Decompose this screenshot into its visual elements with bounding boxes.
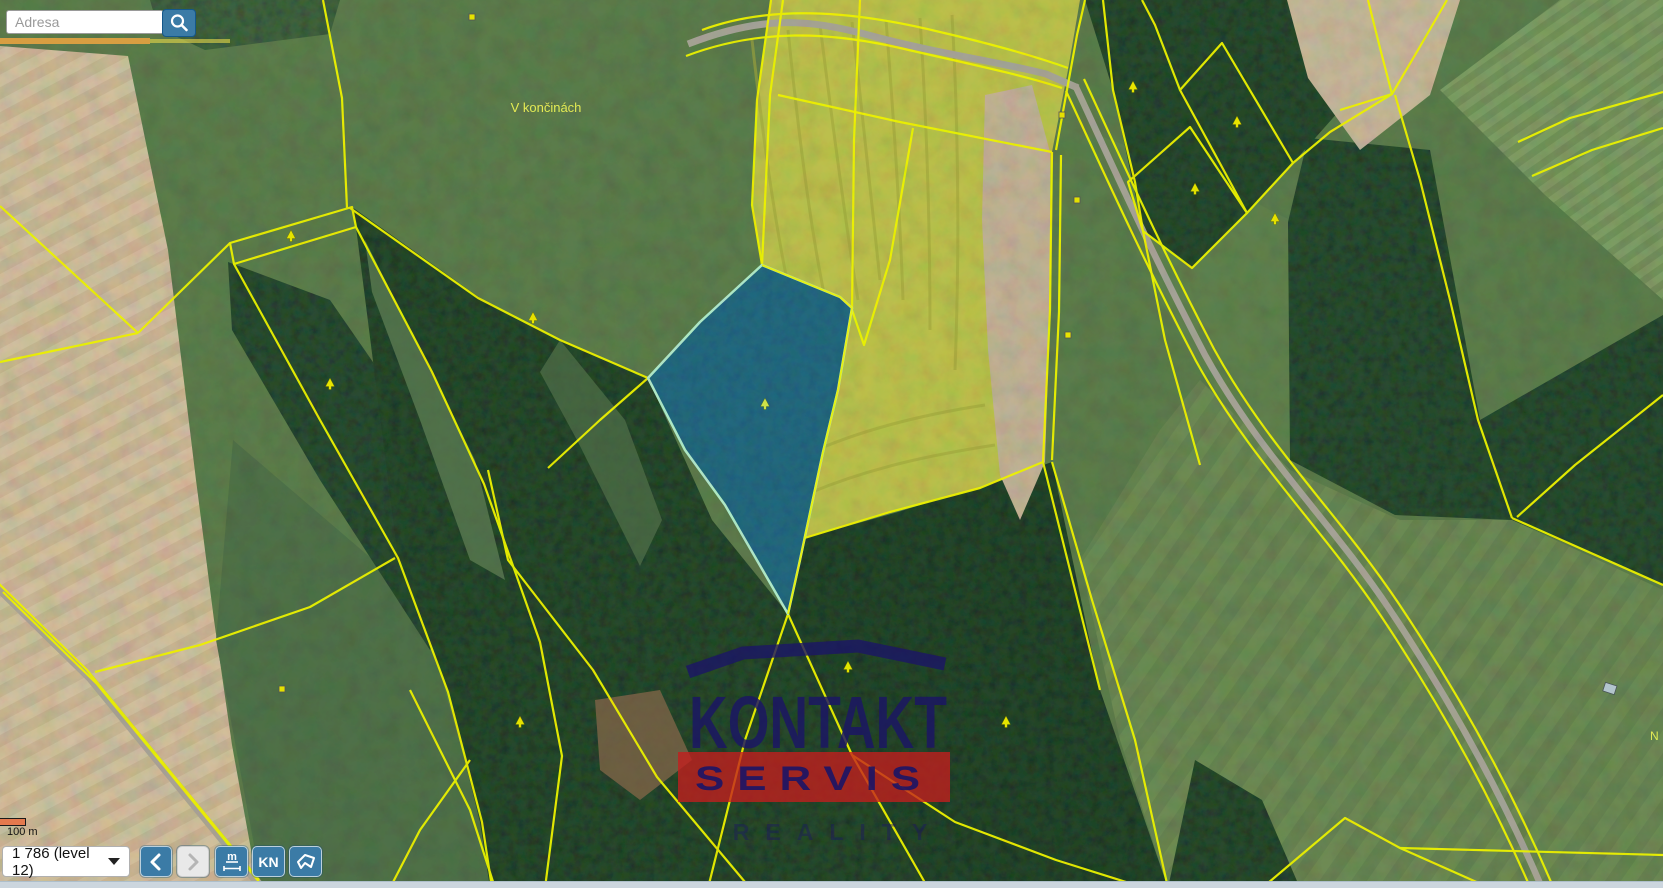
kn-label: KN [258, 854, 278, 870]
search-input[interactable] [6, 10, 164, 34]
chevron-right-icon [185, 851, 201, 873]
measure-button[interactable]: m [215, 846, 248, 877]
measure-icon: m [220, 850, 244, 874]
watermark-band-text: SERVIS [695, 760, 933, 798]
map-application: V končinách N KONTAKT SERVIS REALITY 100… [0, 0, 1663, 888]
status-strip [0, 881, 1663, 888]
back-button[interactable] [140, 846, 172, 877]
watermark-title: KONTAKT [689, 681, 947, 764]
map-canvas[interactable]: V končinách N KONTAKT SERVIS REALITY [0, 0, 1663, 888]
parcel-polygon-icon [294, 851, 318, 873]
boundary-band-fade [150, 39, 230, 43]
zoom-level-select[interactable]: 1 786 (level 12) [2, 846, 130, 877]
watermark-subtitle: REALITY [733, 819, 943, 845]
zoom-level-value: 1 786 (level 12) [3, 845, 108, 879]
boundary-band [0, 38, 150, 44]
cadastre-kn-button[interactable]: KN [252, 846, 285, 877]
search-icon [168, 12, 190, 34]
chevron-left-icon [148, 851, 164, 873]
scale-label: 100 m [7, 826, 38, 838]
forward-button[interactable] [177, 846, 209, 877]
parcel-select-button[interactable] [289, 846, 322, 877]
chevron-down-icon [108, 858, 120, 865]
search-button[interactable] [162, 9, 196, 37]
scale-bar [0, 818, 26, 826]
